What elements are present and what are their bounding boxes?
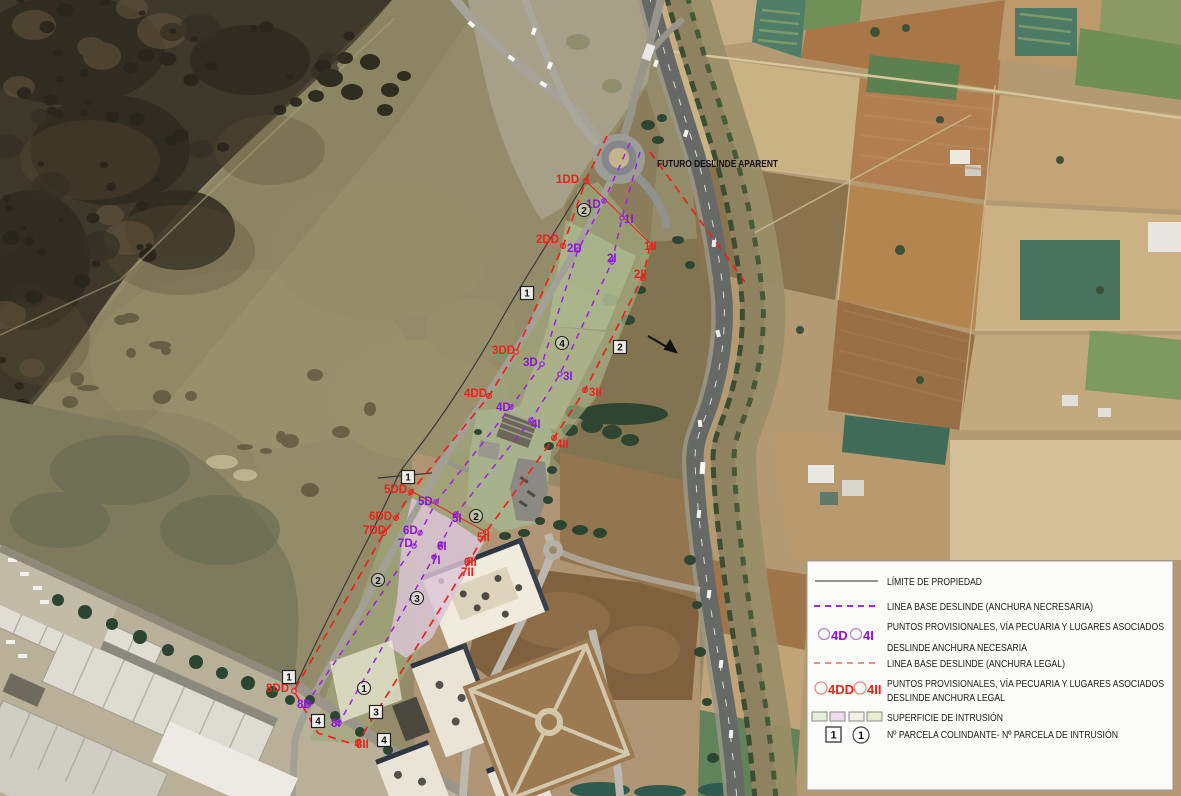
svg-text:1I: 1I — [624, 214, 634, 226]
svg-text:4: 4 — [381, 736, 387, 747]
svg-text:5D: 5D — [418, 496, 433, 508]
svg-text:1: 1 — [858, 730, 864, 742]
svg-text:2DD: 2DD — [536, 234, 559, 246]
svg-text:4D: 4D — [496, 402, 511, 414]
svg-text:2D: 2D — [567, 243, 582, 255]
svg-text:6I: 6I — [437, 541, 447, 553]
svg-text:8DD: 8DD — [266, 683, 289, 695]
svg-text:LINEA BASE DESLINDE (ANCHURA N: LINEA BASE DESLINDE (ANCHURA NECRESARIA) — [887, 602, 1093, 613]
svg-text:3D: 3D — [523, 357, 538, 369]
svg-text:SUPERFICIE DE INTRUSIÓN: SUPERFICIE DE INTRUSIÓN — [887, 711, 1003, 724]
svg-text:1: 1 — [286, 673, 292, 684]
svg-text:1: 1 — [524, 289, 530, 300]
svg-text:2: 2 — [617, 343, 623, 354]
svg-text:5I: 5I — [452, 513, 462, 525]
svg-text:8II: 8II — [356, 739, 369, 751]
svg-text:1II: 1II — [644, 241, 657, 253]
svg-text:6D: 6D — [403, 525, 418, 537]
svg-text:6DD: 6DD — [369, 511, 392, 523]
svg-text:5II: 5II — [477, 532, 490, 544]
svg-text:1: 1 — [361, 684, 367, 695]
svg-text:4I: 4I — [531, 419, 541, 431]
svg-text:8I: 8I — [331, 718, 341, 730]
svg-text:PUNTOS PROVISIONALES, VÍA PECU: PUNTOS PROVISIONALES, VÍA PECUARIA Y LUG… — [887, 620, 1164, 633]
svg-text:1DD: 1DD — [556, 174, 579, 186]
svg-text:3: 3 — [373, 708, 379, 719]
svg-text:4: 4 — [315, 717, 321, 728]
svg-text:3II: 3II — [589, 387, 602, 399]
svg-text:2I: 2I — [607, 253, 617, 265]
svg-text:3I: 3I — [563, 371, 573, 383]
svg-text:2II: 2II — [634, 269, 647, 281]
svg-text:Nº PARCELA COLINDANTE- Nº PARC: Nº PARCELA COLINDANTE- Nº PARCELA DE INT… — [887, 728, 1118, 741]
svg-text:4: 4 — [559, 339, 565, 350]
svg-text:2: 2 — [375, 576, 381, 587]
svg-text:7DD: 7DD — [363, 525, 386, 537]
svg-text:7II: 7II — [461, 567, 474, 579]
svg-text:4DD: 4DD — [464, 388, 487, 400]
svg-text:4D: 4D — [831, 628, 848, 643]
svg-text:3: 3 — [414, 594, 420, 605]
svg-text:7D: 7D — [398, 538, 413, 550]
svg-text:1: 1 — [405, 473, 411, 484]
svg-text:LINEA BASE DESLINDE (ANCHURA L: LINEA BASE DESLINDE (ANCHURA LEGAL) — [887, 659, 1065, 670]
svg-text:4II: 4II — [867, 682, 881, 697]
svg-text:8D: 8D — [297, 699, 312, 711]
svg-text:1: 1 — [830, 730, 836, 742]
svg-text:2: 2 — [581, 206, 587, 217]
svg-text:4I: 4I — [863, 628, 874, 643]
svg-text:DESLINDE ANCHURA NECESARIA: DESLINDE ANCHURA NECESARIA — [887, 643, 1027, 654]
svg-text:FUTURO DESLINDE APARENT: FUTURO DESLINDE APARENT — [657, 159, 778, 170]
svg-text:2: 2 — [473, 512, 479, 523]
svg-text:7I: 7I — [431, 555, 441, 567]
svg-text:LÍMITE DE PROPIEDAD: LÍMITE DE PROPIEDAD — [887, 575, 982, 588]
svg-text:4II: 4II — [556, 439, 569, 451]
svg-text:PUNTOS PROVISIONALES, VÍA PECU: PUNTOS PROVISIONALES, VÍA PECUARIA Y LUG… — [887, 677, 1164, 690]
svg-text:5DD: 5DD — [384, 484, 407, 496]
svg-text:DESLINDE ANCHURA LEGAL: DESLINDE ANCHURA LEGAL — [887, 693, 1005, 704]
svg-text:3DD: 3DD — [492, 345, 515, 357]
svg-text:4DD: 4DD — [828, 682, 854, 697]
